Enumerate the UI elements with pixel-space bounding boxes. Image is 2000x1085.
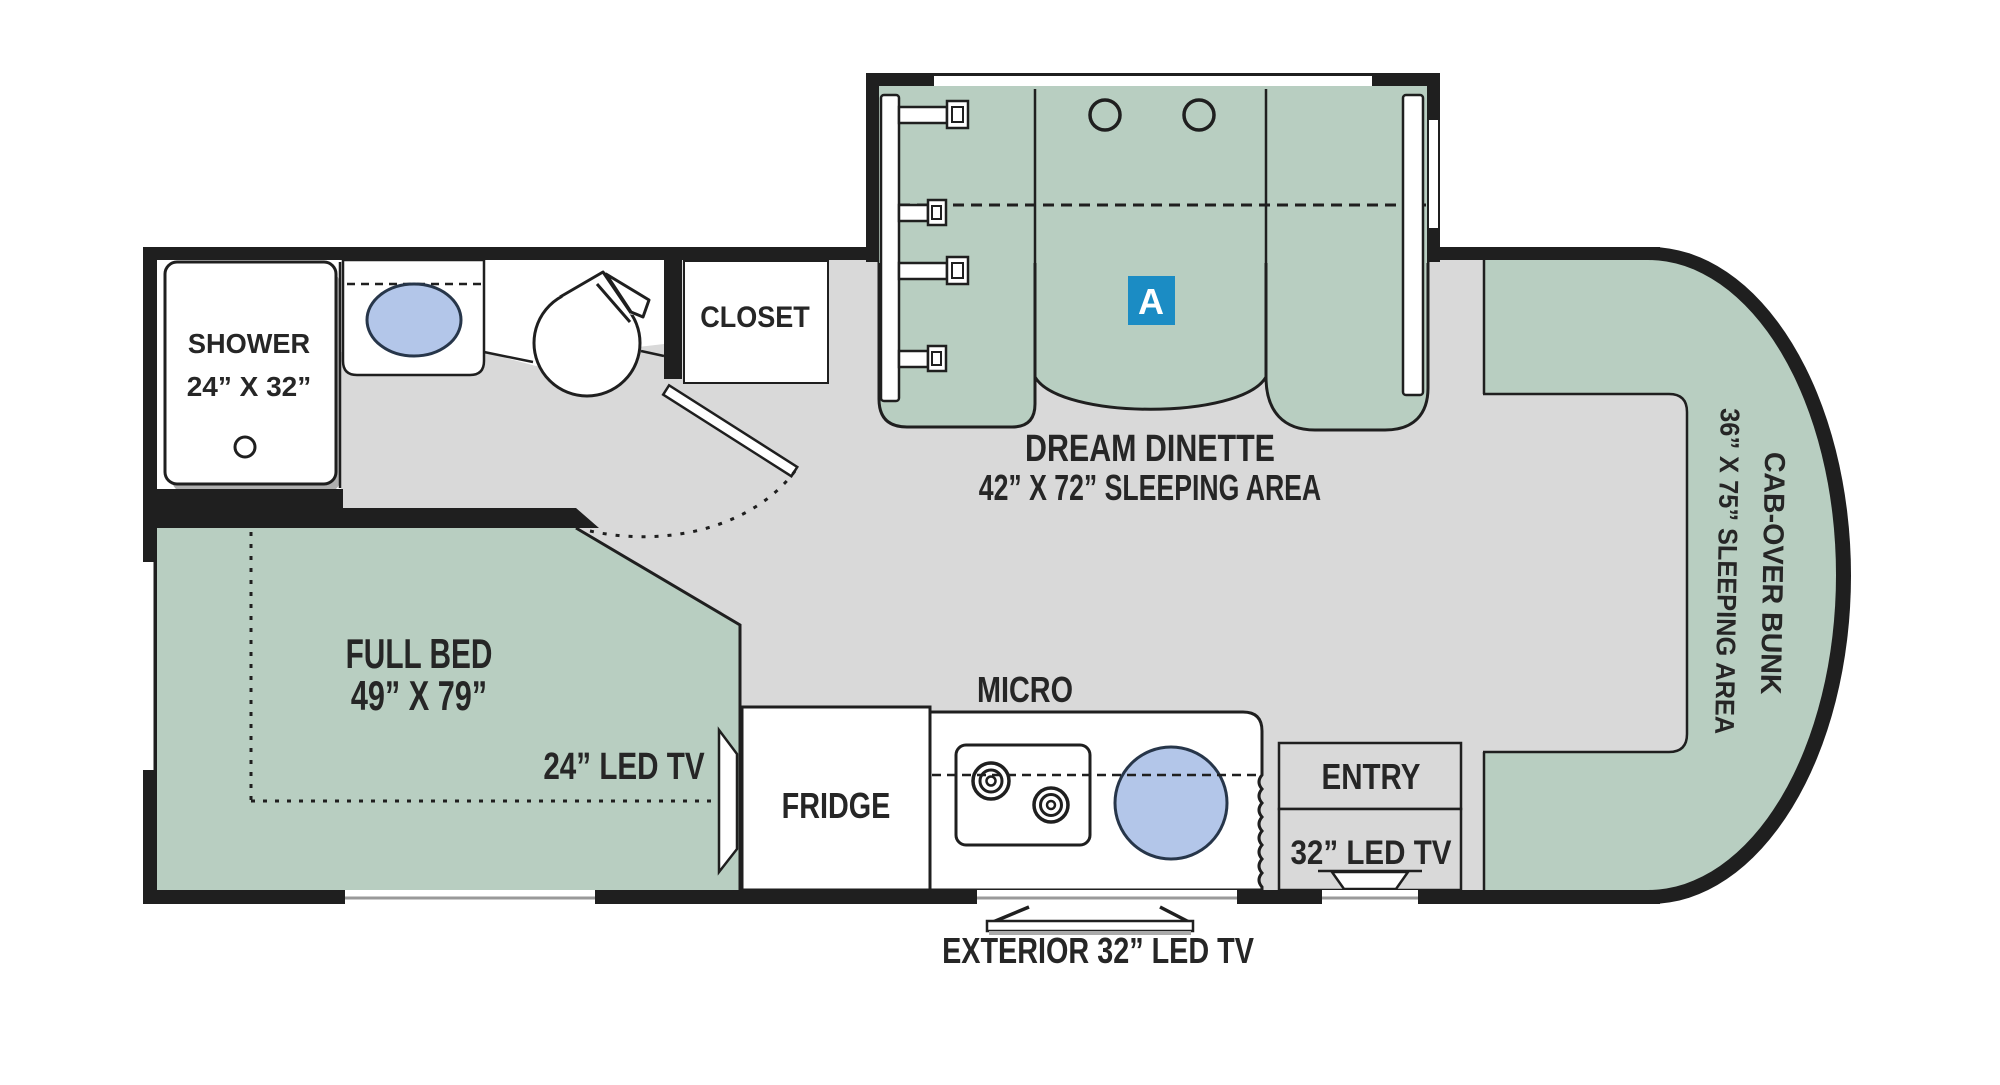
svg-text:FULL BED: FULL BED (346, 630, 493, 677)
svg-text:A: A (1138, 281, 1164, 322)
svg-text:49” X 79”: 49” X 79” (351, 672, 487, 719)
svg-text:CAB-OVER BUNK: CAB-OVER BUNK (1754, 452, 1790, 695)
svg-text:24” X 32”: 24” X 32” (187, 371, 312, 402)
svg-text:SHOWER: SHOWER (188, 328, 310, 359)
svg-text:42” X 72” SLEEPING AREA: 42” X 72” SLEEPING AREA (979, 467, 1321, 508)
svg-text:DREAM DINETTE: DREAM DINETTE (1025, 428, 1275, 470)
svg-text:CLOSET: CLOSET (700, 301, 810, 335)
svg-text:32” LED TV: 32” LED TV (1290, 833, 1452, 871)
svg-text:FRIDGE: FRIDGE (782, 785, 891, 826)
svg-text:MICRO: MICRO (977, 669, 1073, 710)
svg-text:EXTERIOR 32” LED TV: EXTERIOR 32” LED TV (942, 930, 1254, 971)
svg-text:24” LED TV: 24” LED TV (543, 746, 705, 788)
svg-text:36” X 75” SLEEPING AREA: 36” X 75” SLEEPING AREA (1709, 408, 1746, 735)
svg-text:ENTRY: ENTRY (1322, 756, 1421, 796)
